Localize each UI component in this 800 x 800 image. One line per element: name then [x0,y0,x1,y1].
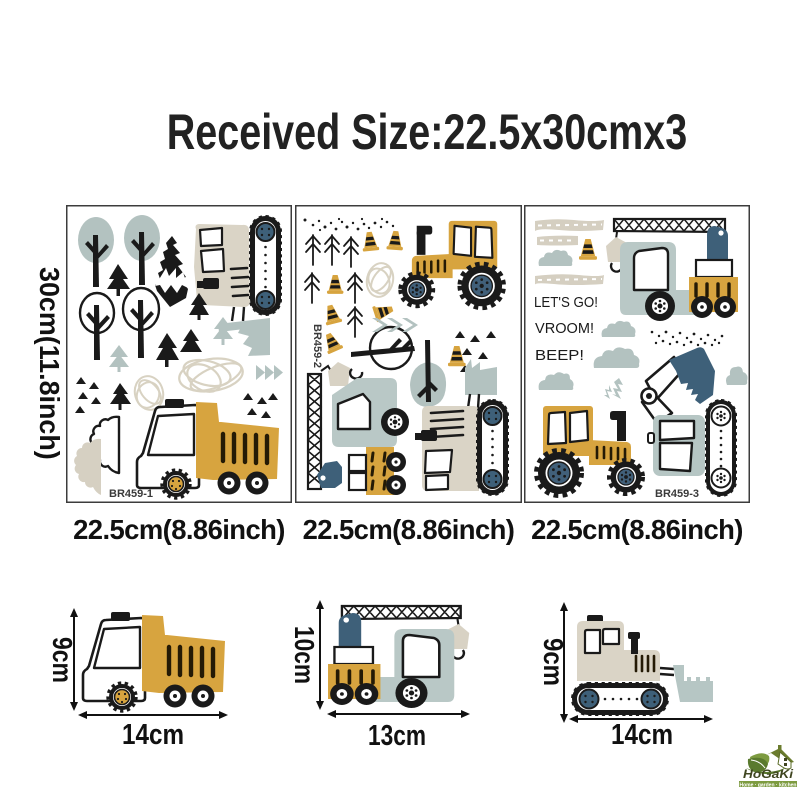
svg-text:Home · garden · kitchen: Home · garden · kitchen [740,782,797,788]
svg-text:BR459-2: BR459-2 [311,324,323,368]
svg-text:14cm: 14cm [122,719,184,751]
svg-text:LET'S GO!: LET'S GO! [534,294,598,311]
svg-text:9cm: 9cm [538,638,569,686]
svg-text:9cm: 9cm [47,637,78,683]
svg-text:HoGaKi: HoGaKi [743,767,794,781]
svg-text:BR459-3: BR459-3 [655,488,699,500]
svg-text:10cm: 10cm [289,626,320,684]
svg-text:14cm: 14cm [611,719,673,751]
svg-text:VROOM!: VROOM! [535,320,594,337]
svg-text:BEEP!: BEEP! [535,347,584,364]
svg-text:13cm: 13cm [368,720,426,752]
svg-text:BR459-1: BR459-1 [109,488,153,500]
